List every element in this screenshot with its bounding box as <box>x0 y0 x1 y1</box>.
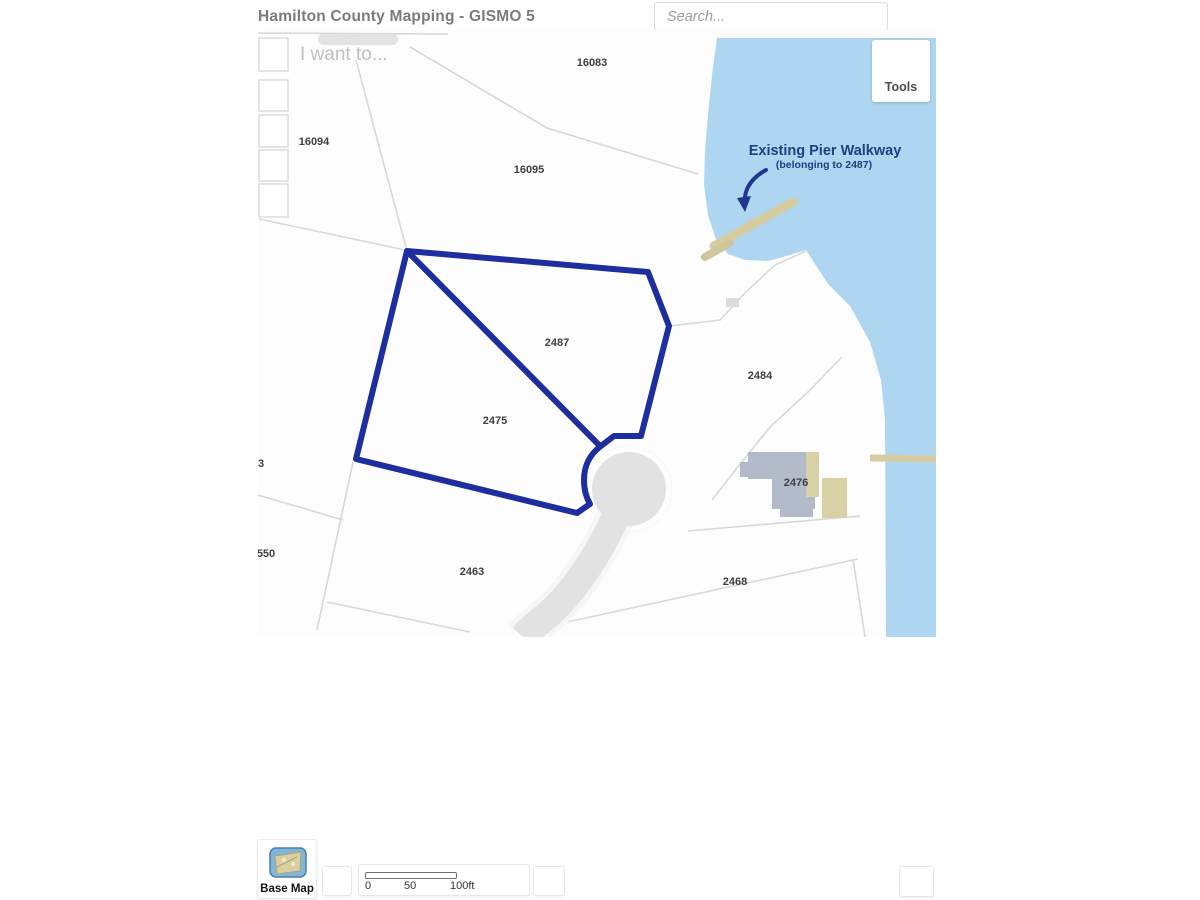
parcel-map: 1608316095160942487247524842476246324683… <box>258 30 936 637</box>
shed-footprint <box>726 298 739 307</box>
toolbar-button-2[interactable] <box>533 866 565 896</box>
scale-bar <box>365 872 457 879</box>
parcel-label: 2487 <box>545 337 569 349</box>
dock-line <box>870 458 936 459</box>
map-viewport[interactable]: 1608316095160942487247524842476246324683… <box>258 30 936 637</box>
parcel-label: 2468 <box>723 576 747 588</box>
parcel-label: 2484 <box>748 370 773 382</box>
parcel-label: 2475 <box>483 415 507 427</box>
toolbar-button-1[interactable] <box>322 866 352 896</box>
tools-button[interactable]: Tools <box>872 40 930 102</box>
parcel-label: 2463 <box>460 566 484 578</box>
parcel-label: 16094 <box>299 136 330 148</box>
search-input[interactable] <box>654 2 888 31</box>
app-window: Hamilton County Mapping - GISMO 5 <box>0 0 1200 900</box>
scale-mid-label: 50 <box>404 880 416 892</box>
parcel-label: 2476 <box>784 477 808 489</box>
base-map-thumbnail-icon <box>269 847 307 878</box>
edge-parcels <box>259 38 288 217</box>
parcel-label: 16083 <box>577 57 608 69</box>
page-title: Hamilton County Mapping - GISMO 5 <box>258 8 535 26</box>
parcel-label: 16095 <box>514 164 545 176</box>
i-want-to-button[interactable]: I want to... <box>300 44 388 66</box>
base-map-selector[interactable]: Base Map <box>257 839 317 899</box>
parcel-label: 3 <box>258 458 264 470</box>
annotation-subtitle: (belonging to 2487) <box>776 159 872 171</box>
scale-end-label: 100ft <box>450 880 474 892</box>
parcel-label: 550 <box>258 548 275 560</box>
base-map-label: Base Map <box>258 883 316 895</box>
toolbar-button-3[interactable] <box>899 866 934 897</box>
scale-bar-panel: 0 50 100ft <box>358 864 530 896</box>
annotation-title: Existing Pier Walkway <box>749 143 902 159</box>
scale-start-label: 0 <box>365 880 371 892</box>
